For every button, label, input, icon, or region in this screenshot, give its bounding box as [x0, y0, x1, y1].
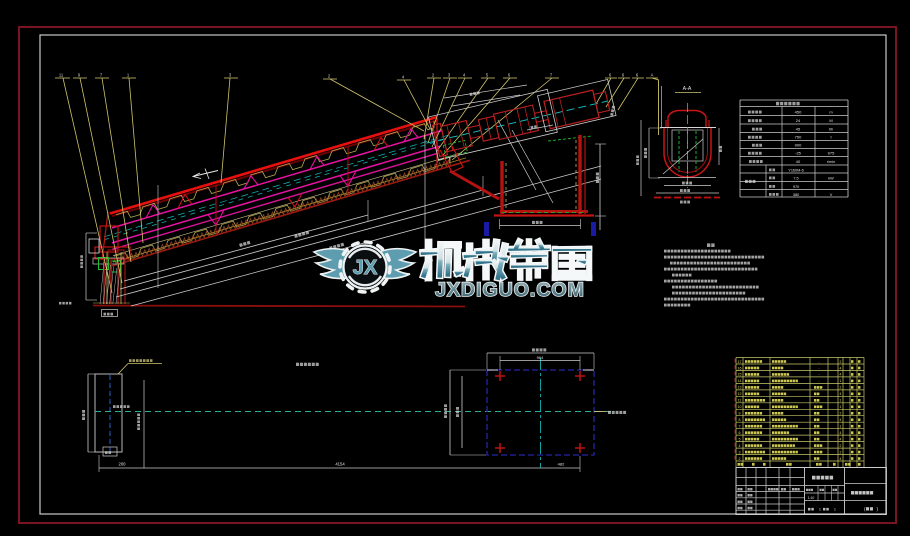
svg-text:2: 2	[739, 457, 741, 461]
svg-text:45: 45	[796, 127, 801, 132]
svg-text:11: 11	[59, 73, 64, 78]
svg-text:450: 450	[795, 110, 802, 115]
svg-text:r/min: r/min	[827, 160, 835, 164]
svg-text:JXDIGUO.COM: JXDIGUO.COM	[435, 279, 585, 301]
svg-text:10: 10	[738, 405, 742, 409]
svg-text:1: 1	[840, 399, 842, 403]
svg-text:5: 5	[739, 438, 741, 442]
svg-text:13: 13	[738, 386, 742, 390]
svg-text:M: M	[829, 118, 832, 123]
svg-text:12: 12	[738, 392, 742, 396]
svg-text:9: 9	[739, 412, 741, 416]
svg-text:A-A: A-A	[683, 86, 692, 92]
svg-text:4: 4	[739, 444, 741, 448]
svg-text:750: 750	[795, 135, 802, 140]
svg-text:1: 1	[819, 508, 821, 512]
svg-text:2: 2	[840, 412, 842, 416]
svg-text:4: 4	[840, 457, 842, 461]
svg-text:1: 1	[840, 405, 842, 409]
svg-text:380: 380	[793, 193, 799, 197]
svg-text:3: 3	[739, 450, 741, 454]
svg-text:40: 40	[796, 159, 801, 164]
svg-text:4: 4	[840, 418, 842, 422]
svg-text:15: 15	[738, 373, 742, 377]
svg-text:1:10: 1:10	[808, 496, 815, 500]
svg-text:4: 4	[840, 373, 842, 377]
svg-text:964: 964	[537, 355, 544, 360]
svg-text:16: 16	[738, 366, 742, 370]
svg-text:2: 2	[840, 360, 842, 364]
svg-text:Y160M-6: Y160M-6	[788, 168, 803, 172]
svg-text:t/h: t/h	[829, 127, 833, 132]
svg-text:A: A	[651, 73, 654, 78]
svg-text:2: 2	[840, 386, 842, 390]
svg-text:200: 200	[119, 462, 127, 467]
svg-text:4: 4	[840, 366, 842, 370]
svg-text:17: 17	[738, 360, 742, 364]
svg-text:4154: 4154	[335, 462, 345, 467]
svg-text:1: 1	[834, 508, 836, 512]
svg-text:-25: -25	[795, 151, 802, 156]
svg-text:11: 11	[738, 399, 742, 403]
svg-text:900: 900	[795, 143, 802, 148]
svg-text:482: 482	[558, 462, 565, 467]
svg-text:975: 975	[828, 151, 835, 156]
svg-text:4: 4	[840, 438, 842, 442]
svg-text:8: 8	[739, 418, 741, 422]
svg-text:4: 4	[840, 431, 842, 435]
svg-text:7: 7	[739, 425, 741, 429]
svg-text:7.5: 7.5	[793, 176, 798, 180]
svg-text:1: 1	[840, 425, 842, 429]
svg-text:2: 2	[840, 450, 842, 454]
svg-text:2: 2	[840, 444, 842, 448]
svg-text:970: 970	[793, 185, 799, 189]
svg-text:6: 6	[739, 431, 741, 435]
svg-text:JX: JX	[353, 257, 378, 279]
svg-text:V: V	[830, 193, 833, 197]
svg-text:24: 24	[796, 118, 801, 123]
svg-text:1: 1	[840, 379, 842, 383]
svg-text:4: 4	[840, 392, 842, 396]
svg-text:kW: kW	[828, 176, 834, 180]
svg-text:14: 14	[738, 379, 742, 383]
